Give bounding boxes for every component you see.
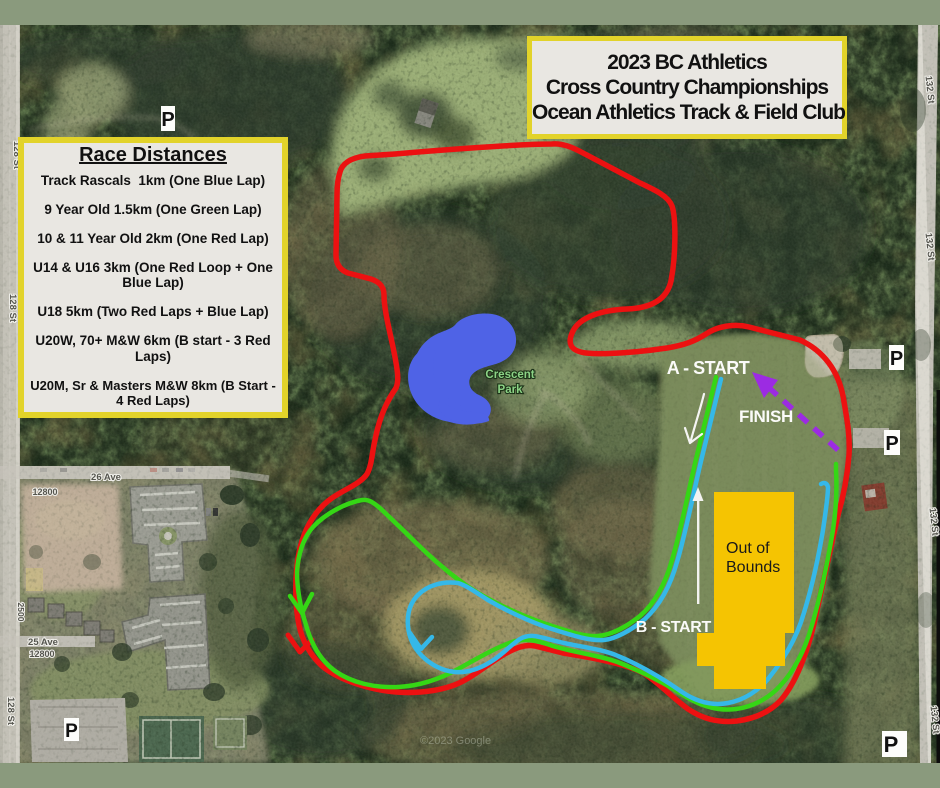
svg-text:P: P <box>884 732 899 757</box>
svg-text:©2023 Google: ©2023 Google <box>420 735 491 747</box>
svg-text:26 Ave: 26 Ave <box>91 472 121 483</box>
svg-text:128 St: 128 St <box>7 294 18 323</box>
svg-text:Park: Park <box>498 384 524 396</box>
svg-text:FINISH: FINISH <box>739 407 793 426</box>
svg-text:P: P <box>161 109 174 131</box>
svg-text:P: P <box>65 721 78 742</box>
svg-text:12800: 12800 <box>29 649 54 659</box>
svg-text:Crescent: Crescent <box>485 369 534 381</box>
svg-text:25 Ave: 25 Ave <box>28 637 58 648</box>
svg-text:128 St: 128 St <box>5 697 16 726</box>
svg-text:Out of: Out of <box>726 540 770 557</box>
svg-text:P: P <box>890 348 903 370</box>
svg-text:P: P <box>885 433 898 455</box>
svg-text:Bounds: Bounds <box>726 559 780 576</box>
svg-text:12800: 12800 <box>32 487 57 497</box>
svg-text:A - START: A - START <box>667 358 750 378</box>
svg-text:2500: 2500 <box>16 603 26 622</box>
